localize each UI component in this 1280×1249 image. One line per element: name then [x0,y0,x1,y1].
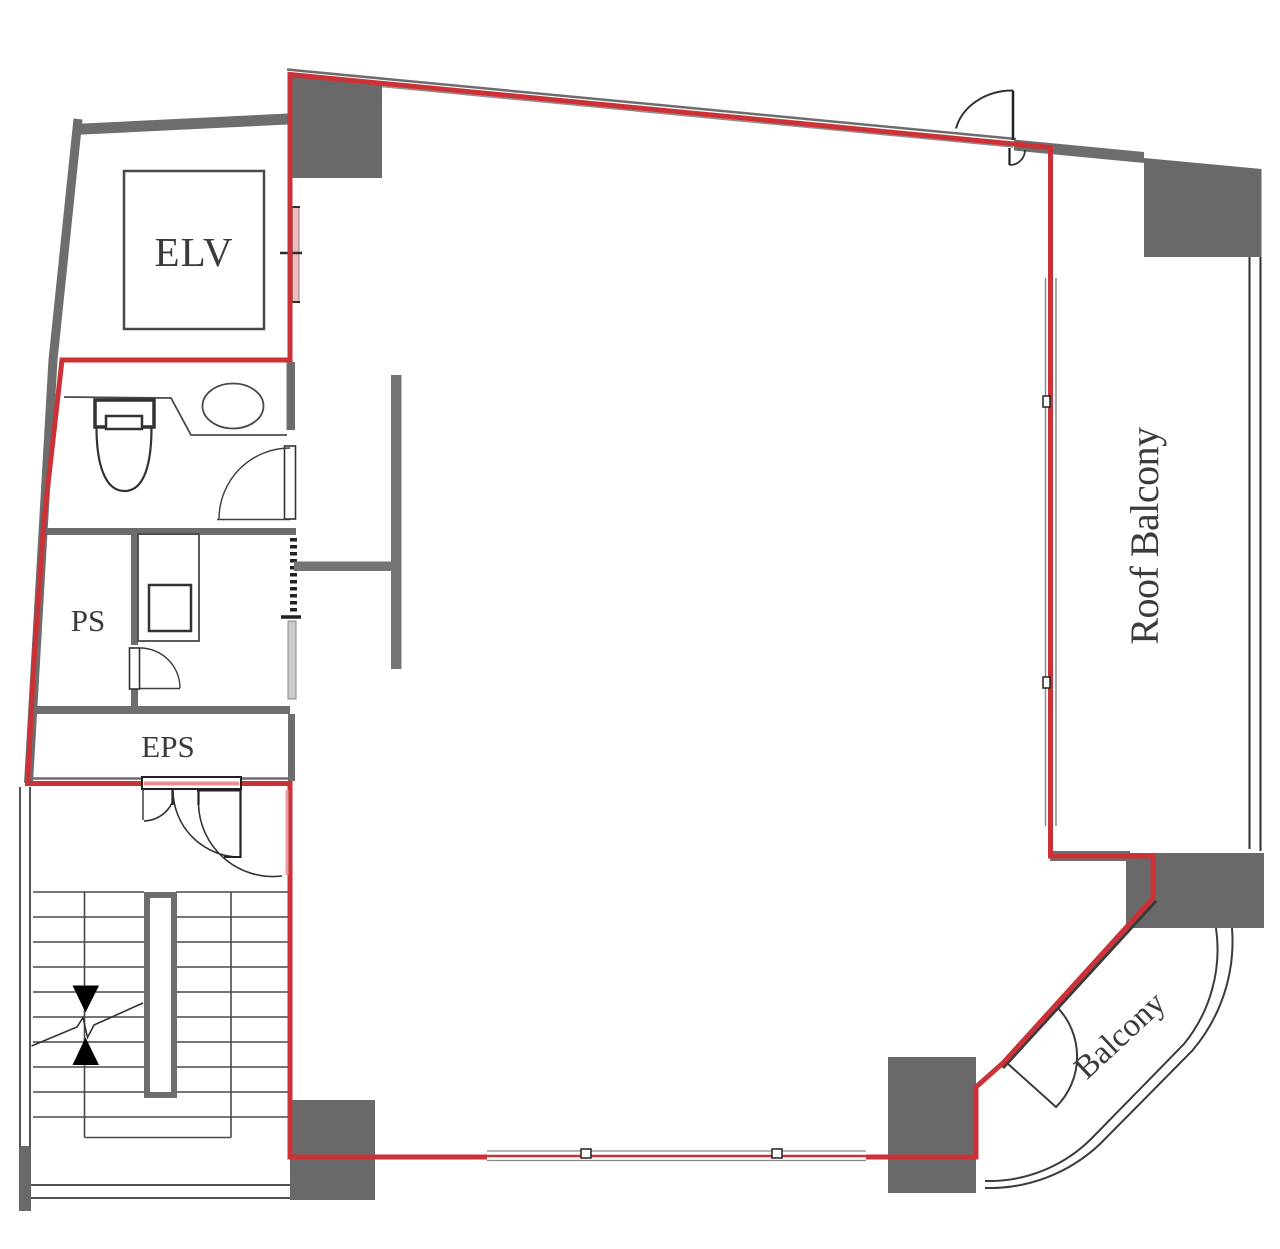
svg-text:Roof Balcony: Roof Balcony [1122,427,1167,645]
svg-text:ELV: ELV [155,229,234,275]
svg-text:PS: PS [71,603,105,638]
svg-text:EPS: EPS [141,729,194,764]
